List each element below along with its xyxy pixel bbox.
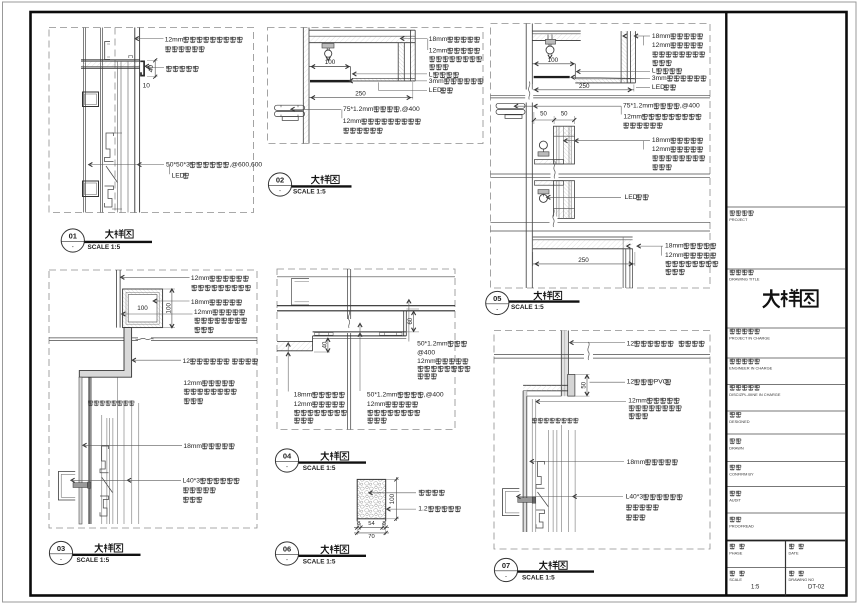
- svg-text:100: 100: [325, 59, 336, 66]
- svg-text:100: 100: [166, 303, 173, 314]
- svg-text:,@400: ,@400: [424, 392, 444, 399]
- svg-text:12mm: 12mm: [165, 36, 184, 43]
- svg-text:3mm: 3mm: [652, 75, 667, 82]
- svg-text:ENGINEER IN CHARGE: ENGINEER IN CHARGE: [729, 366, 772, 371]
- svg-text:50: 50: [561, 112, 568, 118]
- svg-text:-: -: [286, 465, 288, 471]
- svg-text:54: 54: [368, 521, 375, 527]
- svg-text:06: 06: [283, 544, 291, 553]
- svg-text:12mm: 12mm: [367, 401, 386, 408]
- svg-text:1.2: 1.2: [418, 506, 428, 513]
- svg-text:-: -: [496, 307, 498, 313]
- svg-text:8: 8: [382, 521, 385, 527]
- svg-text:250: 250: [578, 257, 589, 264]
- svg-text:PHASE: PHASE: [729, 550, 743, 555]
- svg-text:SCALE: SCALE: [729, 577, 742, 582]
- svg-text:50*1.2mm: 50*1.2mm: [367, 392, 398, 399]
- svg-text:250: 250: [355, 91, 366, 98]
- svg-text:12mm: 12mm: [623, 113, 642, 120]
- svg-text:DESIGNED: DESIGNED: [729, 419, 750, 424]
- svg-text:12mm: 12mm: [343, 118, 362, 125]
- svg-text:SCALE 1:5: SCALE 1:5: [88, 244, 121, 251]
- svg-text:75*1.2mm: 75*1.2mm: [343, 106, 374, 113]
- svg-text:12mm: 12mm: [294, 401, 313, 408]
- svg-text:12mm: 12mm: [665, 252, 684, 259]
- svg-text:12mm: 12mm: [652, 146, 671, 153]
- svg-text:SCALE 1:5: SCALE 1:5: [303, 465, 336, 472]
- svg-text:12mm: 12mm: [628, 397, 647, 404]
- svg-text:-: -: [279, 189, 281, 195]
- svg-text:L40*3: L40*3: [183, 478, 201, 485]
- svg-text:40: 40: [322, 341, 328, 348]
- svg-text:18mm: 18mm: [665, 243, 684, 250]
- svg-text:DISCIZPL-0IINE IN CHARGE: DISCIZPL-0IINE IN CHARGE: [729, 392, 781, 397]
- svg-text:PROOFREAD: PROOFREAD: [729, 524, 754, 529]
- svg-text:18mm: 18mm: [191, 299, 210, 306]
- svg-text:03: 03: [57, 544, 65, 553]
- svg-text:18mm: 18mm: [183, 443, 202, 450]
- svg-text:05: 05: [493, 294, 501, 303]
- svg-text:12mm: 12mm: [183, 380, 202, 387]
- svg-text:-: -: [72, 245, 74, 251]
- svg-text:DATE: DATE: [789, 550, 799, 555]
- svg-text:PROJECT IN CHARGE: PROJECT IN CHARGE: [729, 336, 770, 341]
- svg-text:50: 50: [582, 381, 588, 388]
- svg-text:18mm: 18mm: [429, 36, 448, 43]
- svg-text:SCALE 1:5: SCALE 1:5: [511, 304, 544, 311]
- svg-text:12: 12: [627, 340, 635, 347]
- svg-text:PROJECT: PROJECT: [729, 217, 748, 222]
- svg-text:1:5: 1:5: [751, 585, 760, 591]
- svg-text:12mm: 12mm: [191, 275, 210, 282]
- svg-text:12: 12: [627, 379, 635, 386]
- svg-text:DRAWING NO: DRAWING NO: [789, 577, 815, 582]
- svg-text:02: 02: [276, 175, 284, 184]
- svg-text:AUDIT: AUDIT: [729, 498, 741, 503]
- svg-text:L40*3: L40*3: [626, 494, 644, 501]
- svg-text:04: 04: [283, 451, 292, 460]
- svg-text:@400: @400: [417, 349, 435, 356]
- svg-text:10: 10: [143, 83, 151, 90]
- svg-text:07: 07: [502, 561, 510, 570]
- svg-text:SCALE 1:5: SCALE 1:5: [522, 574, 555, 581]
- svg-text:01: 01: [69, 231, 77, 240]
- svg-text:100: 100: [548, 57, 559, 64]
- svg-text:100: 100: [137, 305, 148, 312]
- svg-text:DT-02: DT-02: [808, 585, 825, 591]
- svg-text:12: 12: [183, 358, 191, 365]
- svg-text:L: L: [652, 68, 656, 75]
- svg-text:18mm: 18mm: [627, 459, 646, 466]
- svg-text:70: 70: [368, 534, 374, 540]
- svg-text:,@600,600: ,@600,600: [229, 161, 262, 168]
- svg-text:,@400: ,@400: [400, 106, 420, 113]
- svg-text:12mm: 12mm: [417, 358, 436, 365]
- svg-text:18mm: 18mm: [652, 33, 671, 40]
- svg-text:100: 100: [389, 493, 396, 504]
- svg-text:18mm: 18mm: [652, 137, 671, 144]
- svg-text:SCALE 1:5: SCALE 1:5: [303, 558, 336, 565]
- svg-text:12mm: 12mm: [652, 42, 671, 49]
- svg-text:250: 250: [579, 83, 590, 90]
- svg-text:SCALE 1:5: SCALE 1:5: [293, 189, 326, 196]
- svg-text:CONFIRM BY: CONFIRM BY: [729, 472, 754, 477]
- svg-text:12mm: 12mm: [429, 47, 448, 54]
- svg-text:SCALE 1:5: SCALE 1:5: [77, 557, 110, 564]
- svg-text:-: -: [505, 574, 507, 580]
- svg-text:DRAWING TITLE: DRAWING TITLE: [729, 277, 760, 282]
- svg-text:18mm: 18mm: [294, 392, 313, 399]
- svg-text:3mm: 3mm: [429, 78, 444, 85]
- svg-text:50: 50: [540, 112, 547, 118]
- svg-text:12mm: 12mm: [194, 309, 213, 316]
- svg-text:DRAWN: DRAWN: [729, 445, 744, 450]
- svg-text:,@400: ,@400: [680, 103, 700, 110]
- svg-text:50*1.2mm: 50*1.2mm: [417, 340, 448, 347]
- svg-text:8: 8: [357, 521, 360, 527]
- svg-text:-: -: [286, 558, 288, 564]
- svg-text:75*1.2mm: 75*1.2mm: [623, 103, 654, 110]
- svg-text:-: -: [60, 557, 62, 563]
